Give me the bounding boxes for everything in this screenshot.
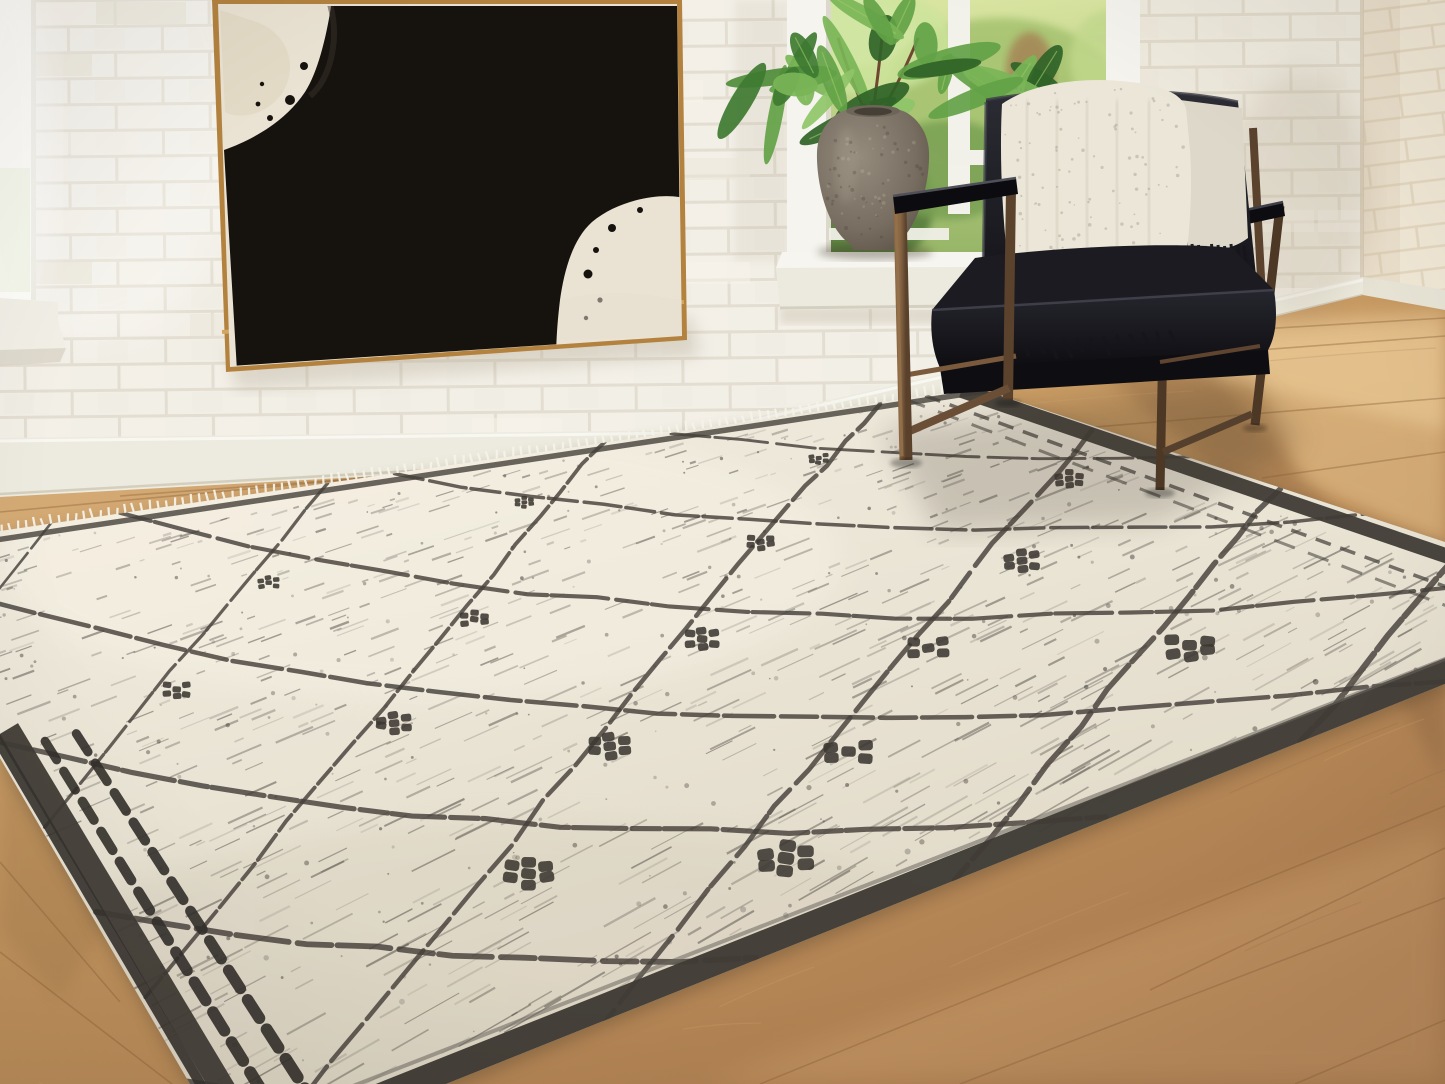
living-room-photo — [0, 0, 1445, 1084]
scene-svg — [0, 0, 1445, 1084]
vignette — [0, 0, 1445, 1084]
